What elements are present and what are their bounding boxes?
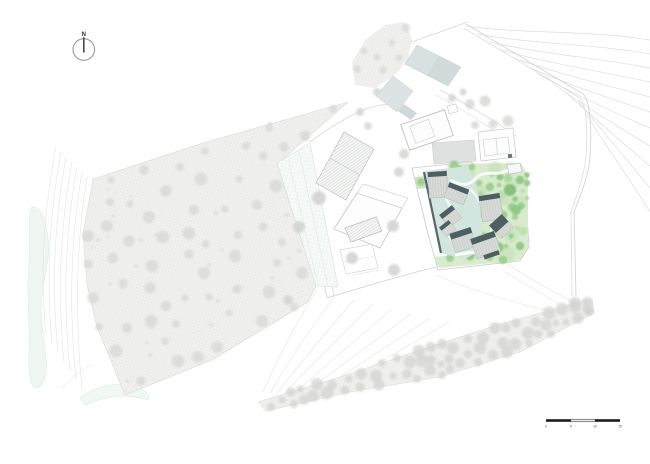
- svg-text:N: N: [82, 32, 86, 38]
- svg-text:15: 15: [618, 425, 622, 429]
- svg-text:5: 5: [570, 425, 572, 429]
- svg-text:0: 0: [545, 425, 547, 429]
- svg-text:10: 10: [593, 425, 597, 429]
